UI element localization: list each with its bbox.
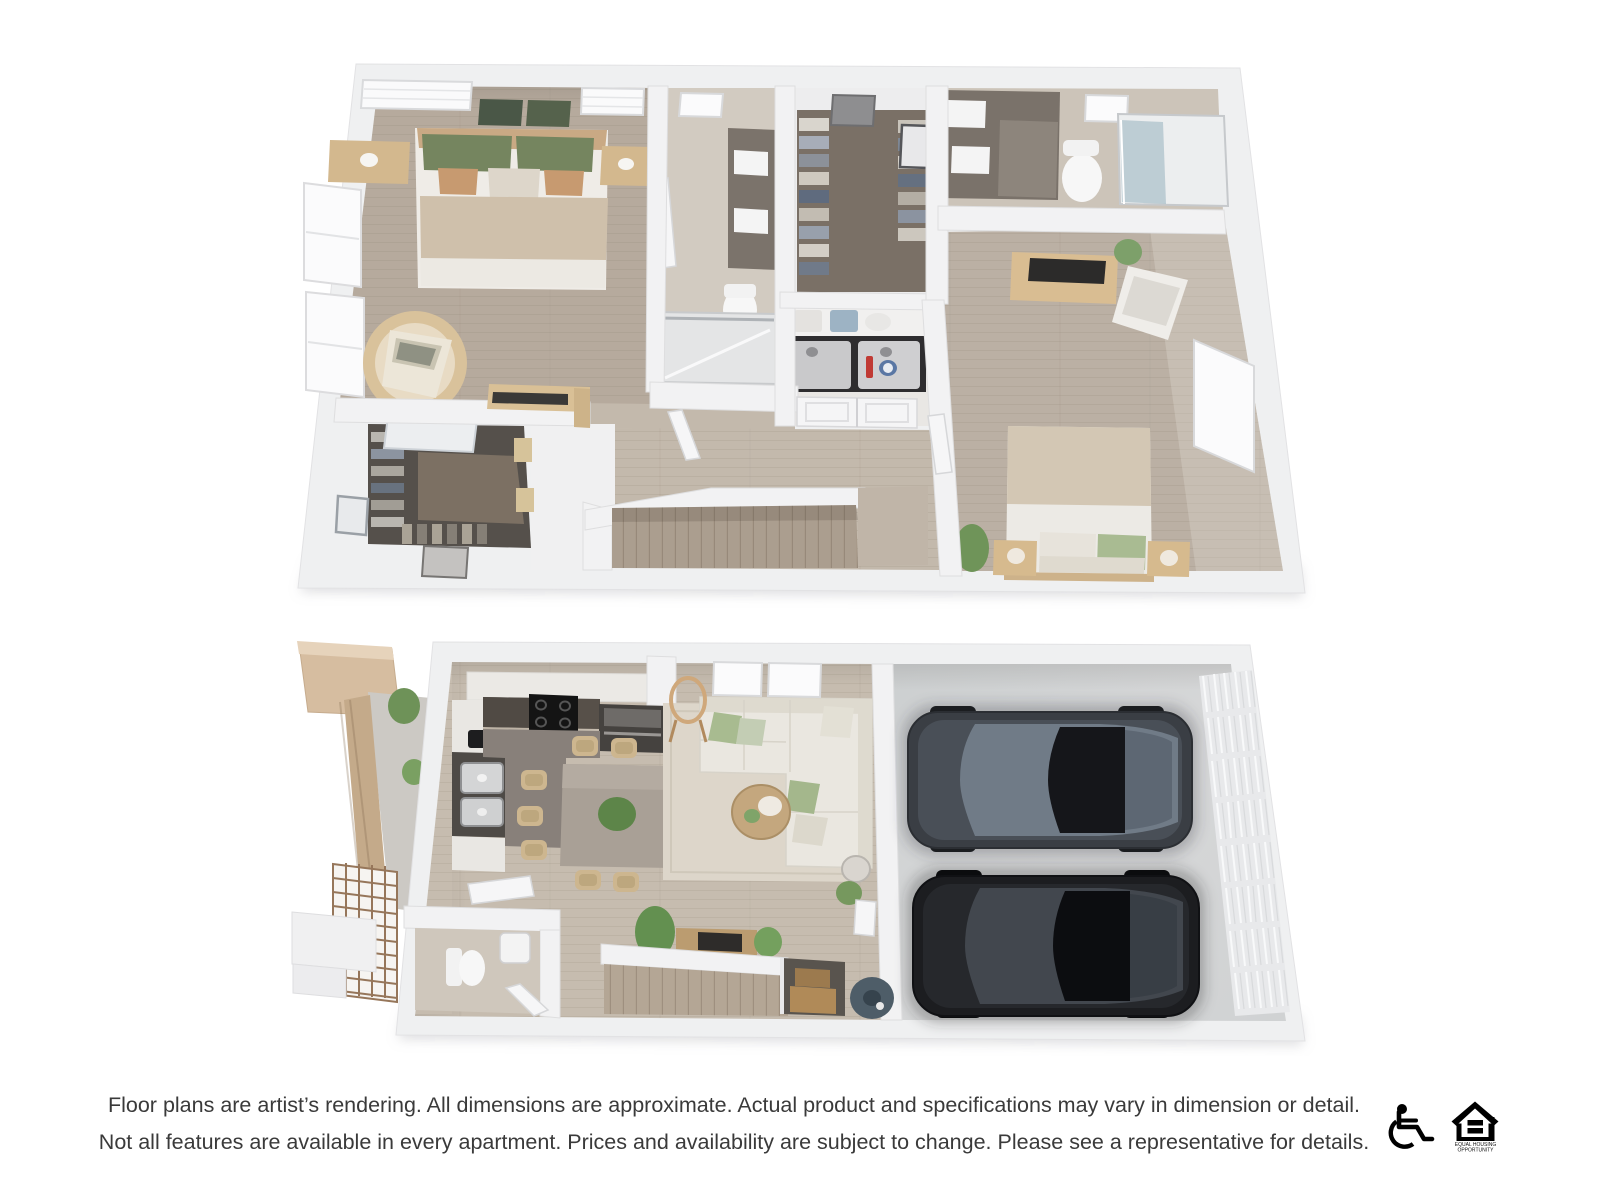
svg-text:Floor plans are artist’s rende: Floor plans are artist’s rendering. All … (108, 1093, 1360, 1117)
svg-text:OPPORTUNITY: OPPORTUNITY (1457, 1148, 1494, 1154)
svg-text:Not all features are available: Not all features are available in every … (99, 1130, 1369, 1154)
